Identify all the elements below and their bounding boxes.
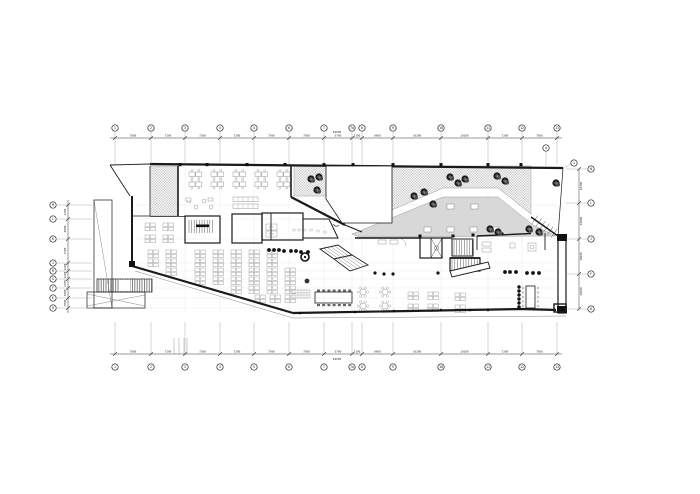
stair-landing bbox=[119, 280, 130, 291]
desk-cluster bbox=[211, 169, 224, 179]
toilet-fixture bbox=[316, 230, 319, 232]
grid-bubble-label: 12 bbox=[520, 365, 524, 369]
grid-bubble-label: L bbox=[590, 201, 592, 205]
grid-bubble: J bbox=[50, 260, 56, 266]
grid-bubble-label: G bbox=[52, 277, 54, 281]
grid-bubble-label: 9 bbox=[392, 126, 394, 130]
dimension-text: 7200 bbox=[502, 350, 509, 354]
wall bbox=[110, 165, 130, 196]
grid-bubble-label: 10 bbox=[439, 365, 443, 369]
dimension-text: 7200 bbox=[502, 134, 509, 138]
grid-bubble: 7 bbox=[321, 364, 327, 370]
grid-bubble: 3 bbox=[182, 364, 188, 370]
grid-bubble: 7a bbox=[349, 364, 355, 370]
chair bbox=[333, 304, 336, 306]
room-outline bbox=[315, 292, 352, 303]
chair bbox=[522, 292, 524, 294]
column bbox=[179, 163, 182, 166]
desk-cluster bbox=[233, 169, 246, 179]
grid-bubble: F bbox=[588, 271, 594, 277]
dimension-text: 5700 bbox=[335, 134, 342, 138]
desk-pod bbox=[166, 268, 176, 276]
grid-bubble-label: L bbox=[52, 217, 54, 221]
desk-pod bbox=[213, 250, 223, 258]
chair bbox=[338, 304, 341, 306]
column-dot bbox=[517, 289, 520, 292]
column-dot bbox=[508, 270, 512, 274]
room-outline bbox=[326, 166, 392, 223]
dimension-text: 7800 bbox=[130, 134, 137, 138]
dimension-text: 10200 bbox=[413, 134, 422, 138]
wall bbox=[293, 309, 556, 313]
dimension-text: 2100 bbox=[354, 134, 361, 138]
grid-bubble: 4 bbox=[217, 125, 223, 131]
grid-bubble: 9 bbox=[390, 364, 396, 370]
desk-pod bbox=[148, 250, 158, 258]
column-dot bbox=[514, 270, 518, 274]
dimension-text: 10200 bbox=[579, 181, 583, 190]
grid-bubble: H bbox=[50, 268, 56, 274]
dimension-text: 2100 bbox=[354, 350, 361, 354]
column-dot bbox=[354, 311, 357, 314]
grid-bubble-label: 7a bbox=[350, 126, 354, 130]
lightwell-hatch bbox=[150, 166, 178, 216]
desk-cluster bbox=[233, 179, 246, 189]
chair bbox=[333, 290, 336, 292]
grid-bubble: N bbox=[588, 166, 594, 172]
column-dot bbox=[272, 248, 276, 252]
grid-bubble-label: 6 bbox=[288, 365, 290, 369]
room-outline bbox=[450, 262, 490, 277]
dimension-text: 10800 bbox=[579, 216, 583, 225]
desk-pod bbox=[270, 295, 280, 303]
room-outline bbox=[452, 239, 473, 256]
chair bbox=[522, 305, 524, 307]
dim-total: 84000 bbox=[333, 130, 342, 134]
round-table bbox=[357, 287, 369, 297]
dimension-text: 7500 bbox=[303, 350, 310, 354]
desk-pod bbox=[285, 277, 295, 285]
grid-bubble: G bbox=[50, 276, 56, 282]
column bbox=[557, 234, 567, 241]
grid-bubble-label: 4 bbox=[219, 365, 221, 369]
grid-bubble-label: 5 bbox=[253, 126, 255, 130]
dimension-text: 2400 bbox=[63, 263, 67, 270]
dimension-text: 10200 bbox=[460, 134, 469, 138]
grid-bubble-label: 12 bbox=[520, 126, 524, 130]
column-dot bbox=[517, 305, 520, 308]
grid-bubble-label: 2 bbox=[150, 126, 152, 130]
grid-bubble-label: 8 bbox=[361, 365, 363, 369]
stair-rail bbox=[196, 225, 209, 228]
column-dot bbox=[299, 312, 302, 315]
dimension-text: 10200 bbox=[460, 350, 469, 354]
toilet-fixture bbox=[292, 229, 295, 231]
dimension-text: 10500 bbox=[579, 287, 583, 296]
grid-bubble: 4 bbox=[217, 364, 223, 370]
dimension-text: 4200 bbox=[63, 208, 67, 215]
column-dot bbox=[531, 271, 535, 275]
toilet-fixture bbox=[297, 229, 300, 231]
desk-pod bbox=[267, 286, 277, 294]
dimension-text: 7200 bbox=[63, 247, 67, 254]
column-dot bbox=[282, 249, 286, 253]
skylight bbox=[470, 227, 477, 232]
skylight bbox=[447, 227, 454, 232]
wall bbox=[110, 164, 150, 165]
room-outline bbox=[232, 214, 262, 243]
locker-row bbox=[233, 197, 258, 202]
grid-bubble: 11 bbox=[485, 364, 491, 370]
grid-bubble-label: F bbox=[590, 272, 592, 276]
column-dot bbox=[289, 249, 293, 253]
desk-cluster bbox=[189, 179, 202, 189]
grid-bubble: K bbox=[50, 236, 56, 242]
lounge-table bbox=[194, 205, 198, 209]
grid-bubble-label: N bbox=[590, 167, 592, 171]
column-dot bbox=[525, 271, 529, 275]
column-dot bbox=[517, 293, 520, 296]
dimension-text: 6600 bbox=[374, 350, 381, 354]
grid-bubble-label: M bbox=[52, 203, 54, 207]
grid-bubble-label: D bbox=[590, 307, 592, 311]
room-outline bbox=[526, 286, 535, 308]
chair bbox=[522, 301, 524, 303]
desk-pod bbox=[408, 292, 418, 300]
grid-bubble-label: 5 bbox=[253, 365, 255, 369]
grid-bubble: 12 bbox=[519, 364, 525, 370]
toilet-stall bbox=[266, 231, 277, 237]
wall bbox=[558, 168, 563, 236]
grid-bubble-label: 7a bbox=[350, 365, 354, 369]
column-dot bbox=[537, 271, 541, 275]
chair bbox=[327, 290, 330, 292]
column bbox=[472, 234, 475, 237]
grid-bubble-label: 9 bbox=[392, 365, 394, 369]
desk-pod bbox=[213, 277, 223, 285]
column bbox=[452, 235, 455, 238]
lounge-table bbox=[202, 199, 206, 203]
chair bbox=[348, 290, 351, 292]
grid-leader bbox=[563, 164, 571, 168]
dimension-text: 7500 bbox=[536, 350, 543, 354]
column-dot bbox=[517, 301, 520, 304]
dimension-text: 7200 bbox=[165, 134, 172, 138]
desk-cluster bbox=[211, 179, 224, 189]
desk-pod bbox=[428, 292, 438, 300]
grid-bubble: F bbox=[50, 285, 56, 291]
grid-bubble-label: 3 bbox=[184, 126, 186, 130]
desk-pod bbox=[166, 250, 176, 258]
dim-total: 84000 bbox=[333, 357, 342, 361]
lounge-table bbox=[209, 205, 213, 209]
chair bbox=[348, 304, 351, 306]
chair bbox=[338, 290, 341, 292]
grid-bubble-label: H bbox=[52, 269, 54, 273]
room-outline bbox=[303, 219, 338, 238]
chair bbox=[317, 290, 320, 292]
column-dot bbox=[277, 248, 281, 252]
right-wall bbox=[558, 236, 566, 313]
column-dot bbox=[294, 249, 298, 253]
grid-bubble-label: 2 bbox=[150, 365, 152, 369]
chair bbox=[537, 305, 539, 307]
dimension-text: 6000 bbox=[63, 225, 67, 232]
dimension-text: 7500 bbox=[268, 134, 275, 138]
grid-bubble-label: a bbox=[545, 146, 547, 150]
dimension-text: 7200 bbox=[234, 134, 241, 138]
grid-bubble-label: 13 bbox=[555, 365, 559, 369]
grid-bubble-label: 4 bbox=[219, 126, 221, 130]
grid-bubble: 7a bbox=[349, 125, 355, 131]
furniture-item bbox=[186, 198, 191, 201]
grid-bubble-label: 1 bbox=[114, 365, 116, 369]
column bbox=[419, 235, 422, 238]
column-dot bbox=[393, 310, 396, 313]
desk-pod bbox=[163, 223, 173, 231]
locker-row bbox=[233, 204, 258, 209]
grid-bubble: D bbox=[588, 306, 594, 312]
grid-bubble-label: F bbox=[52, 286, 54, 290]
grid-bubble: 1 bbox=[112, 364, 118, 370]
grid-bubble-label: K bbox=[52, 237, 54, 241]
chair bbox=[522, 296, 524, 298]
locker-row bbox=[292, 295, 310, 298]
column-dot bbox=[517, 297, 520, 300]
grid-bubble: 10 bbox=[438, 364, 444, 370]
architectural-floor-plan: 178002720037200472005750067500757007a210… bbox=[0, 0, 700, 494]
round-table bbox=[379, 287, 391, 297]
column-dot bbox=[487, 309, 490, 312]
desk-cluster bbox=[189, 169, 202, 179]
wall bbox=[345, 225, 362, 232]
skylight bbox=[424, 227, 431, 232]
round-table bbox=[379, 301, 391, 311]
grid-bubble: D bbox=[50, 305, 56, 311]
column-dot bbox=[440, 309, 443, 312]
grid-bubble: E bbox=[50, 295, 56, 301]
grid-bubble: 3 bbox=[182, 125, 188, 131]
grid-bubble-label: 6 bbox=[288, 126, 290, 130]
grid-bubble: 13 bbox=[554, 125, 560, 131]
dimension-text: 6600 bbox=[374, 134, 381, 138]
chair bbox=[322, 304, 325, 306]
dimension-text: 10500 bbox=[579, 252, 583, 261]
skylight bbox=[471, 204, 478, 209]
dimension-text: 7200 bbox=[234, 350, 241, 354]
dimension-text: 7500 bbox=[536, 134, 543, 138]
desk-pod bbox=[195, 268, 205, 276]
grid-bubble-label: 1 bbox=[573, 161, 575, 165]
grid-bubble: 10 bbox=[438, 125, 444, 131]
desk-pod bbox=[455, 293, 465, 301]
desk-cluster bbox=[277, 169, 290, 179]
grid-bubble-label: 3 bbox=[184, 365, 186, 369]
grid-bubble-label: 11 bbox=[486, 126, 490, 130]
furniture-item bbox=[378, 240, 386, 244]
desk-pod bbox=[231, 277, 241, 285]
dimension-text: 2400 bbox=[63, 271, 67, 278]
grid-bubble: 7 bbox=[321, 125, 327, 131]
dimension-text: 2700 bbox=[63, 280, 67, 287]
column bbox=[206, 163, 209, 166]
chair bbox=[322, 290, 325, 292]
grid-bubble: 8 bbox=[359, 364, 365, 370]
desk-pod bbox=[231, 250, 241, 258]
grid-bubble: 1 bbox=[112, 125, 118, 131]
toilet-fixture bbox=[309, 229, 312, 231]
round-feature bbox=[304, 256, 306, 258]
furniture-item bbox=[528, 243, 536, 251]
grid-bubble: 5 bbox=[251, 125, 257, 131]
grid-bubble: 2 bbox=[148, 125, 154, 131]
desk-cluster bbox=[277, 179, 290, 189]
chair bbox=[537, 296, 539, 298]
column-dot bbox=[267, 248, 271, 252]
column-dot bbox=[469, 309, 472, 312]
grid-bubble-label: J bbox=[590, 237, 592, 241]
grid-bubble-label: 7 bbox=[323, 365, 325, 369]
column bbox=[246, 163, 249, 166]
tree bbox=[552, 179, 560, 186]
furniture-item bbox=[208, 198, 213, 201]
desk-pod bbox=[231, 286, 241, 294]
dimension-text: 7800 bbox=[130, 350, 137, 354]
grid-bubble: 2 bbox=[148, 364, 154, 370]
desk-cluster bbox=[255, 169, 268, 179]
desk-cluster bbox=[255, 179, 268, 189]
column-dot bbox=[391, 272, 394, 275]
desk-pod bbox=[195, 277, 205, 285]
grid-bubble: 5 bbox=[251, 364, 257, 370]
desk-pod bbox=[285, 268, 295, 276]
column-dot bbox=[382, 272, 385, 275]
dimension-text: 7500 bbox=[303, 134, 310, 138]
chair bbox=[327, 304, 330, 306]
desk-pod bbox=[267, 277, 277, 285]
locker-row bbox=[292, 290, 310, 293]
grid-bubble: a bbox=[543, 145, 549, 151]
grid-bubble: 1 bbox=[571, 160, 577, 166]
column-dot bbox=[373, 271, 376, 274]
grid-bubble: L bbox=[50, 216, 56, 222]
grid-bubble: 13 bbox=[554, 364, 560, 370]
chair bbox=[537, 292, 539, 294]
grid-bubble: L bbox=[588, 200, 594, 206]
dimension-text: 7200 bbox=[199, 134, 206, 138]
round-table bbox=[357, 301, 369, 311]
grid-bubble-label: D bbox=[52, 306, 54, 310]
dimension-text: 10200 bbox=[413, 350, 422, 354]
dimension-text: 7200 bbox=[199, 350, 206, 354]
column bbox=[129, 261, 135, 267]
grid-bubble: 11 bbox=[485, 125, 491, 131]
desk-pod bbox=[267, 268, 277, 276]
grid-bubble: 6 bbox=[286, 125, 292, 131]
grid-bubble-label: 10 bbox=[439, 126, 443, 130]
dimension-text: 7200 bbox=[165, 350, 172, 354]
column-dot bbox=[503, 270, 507, 274]
dimension-text: 3000 bbox=[63, 289, 67, 296]
desk-pod bbox=[231, 268, 241, 276]
chair bbox=[317, 304, 320, 306]
desk-pod bbox=[145, 223, 155, 231]
column bbox=[284, 163, 287, 166]
grid-bubble-label: 1 bbox=[114, 126, 116, 130]
grid-bubble-label: 11 bbox=[486, 365, 490, 369]
desk-pod bbox=[195, 250, 205, 258]
chair bbox=[343, 304, 346, 306]
grid-bubble-label: 13 bbox=[555, 126, 559, 130]
desk-pod bbox=[213, 268, 223, 276]
desk-pod bbox=[455, 305, 465, 313]
dimension-text: 7500 bbox=[268, 350, 275, 354]
furniture-item bbox=[482, 248, 491, 252]
grid-bubble: 9 bbox=[390, 125, 396, 131]
furniture-item bbox=[482, 242, 491, 246]
furniture-item bbox=[390, 240, 398, 244]
floor-plan-canvas: 178002720037200472005750067500757007a210… bbox=[0, 0, 700, 494]
grid-bubble: 8 bbox=[359, 125, 365, 131]
column-dot bbox=[517, 285, 520, 288]
grid-bubble: J bbox=[588, 236, 594, 242]
dimension-text: 3000 bbox=[63, 299, 67, 306]
grid-bubble-label: 7 bbox=[323, 126, 325, 130]
wall-break-mark bbox=[333, 224, 339, 226]
skylight bbox=[447, 204, 454, 209]
grid-bubble: 6 bbox=[286, 364, 292, 370]
grid-bubble-label: E bbox=[52, 296, 54, 300]
plant bbox=[305, 279, 310, 284]
column-dot bbox=[436, 271, 439, 274]
chair bbox=[537, 301, 539, 303]
grid-bubble: 12 bbox=[519, 125, 525, 131]
dimension-text: 5700 bbox=[335, 350, 342, 354]
chair bbox=[343, 290, 346, 292]
furniture-item bbox=[510, 243, 515, 248]
grid-bubble-label: 8 bbox=[361, 126, 363, 130]
grid-bubble-label: J bbox=[52, 261, 54, 265]
grid-bubble: M bbox=[50, 202, 56, 208]
toilet-stall bbox=[266, 224, 277, 230]
